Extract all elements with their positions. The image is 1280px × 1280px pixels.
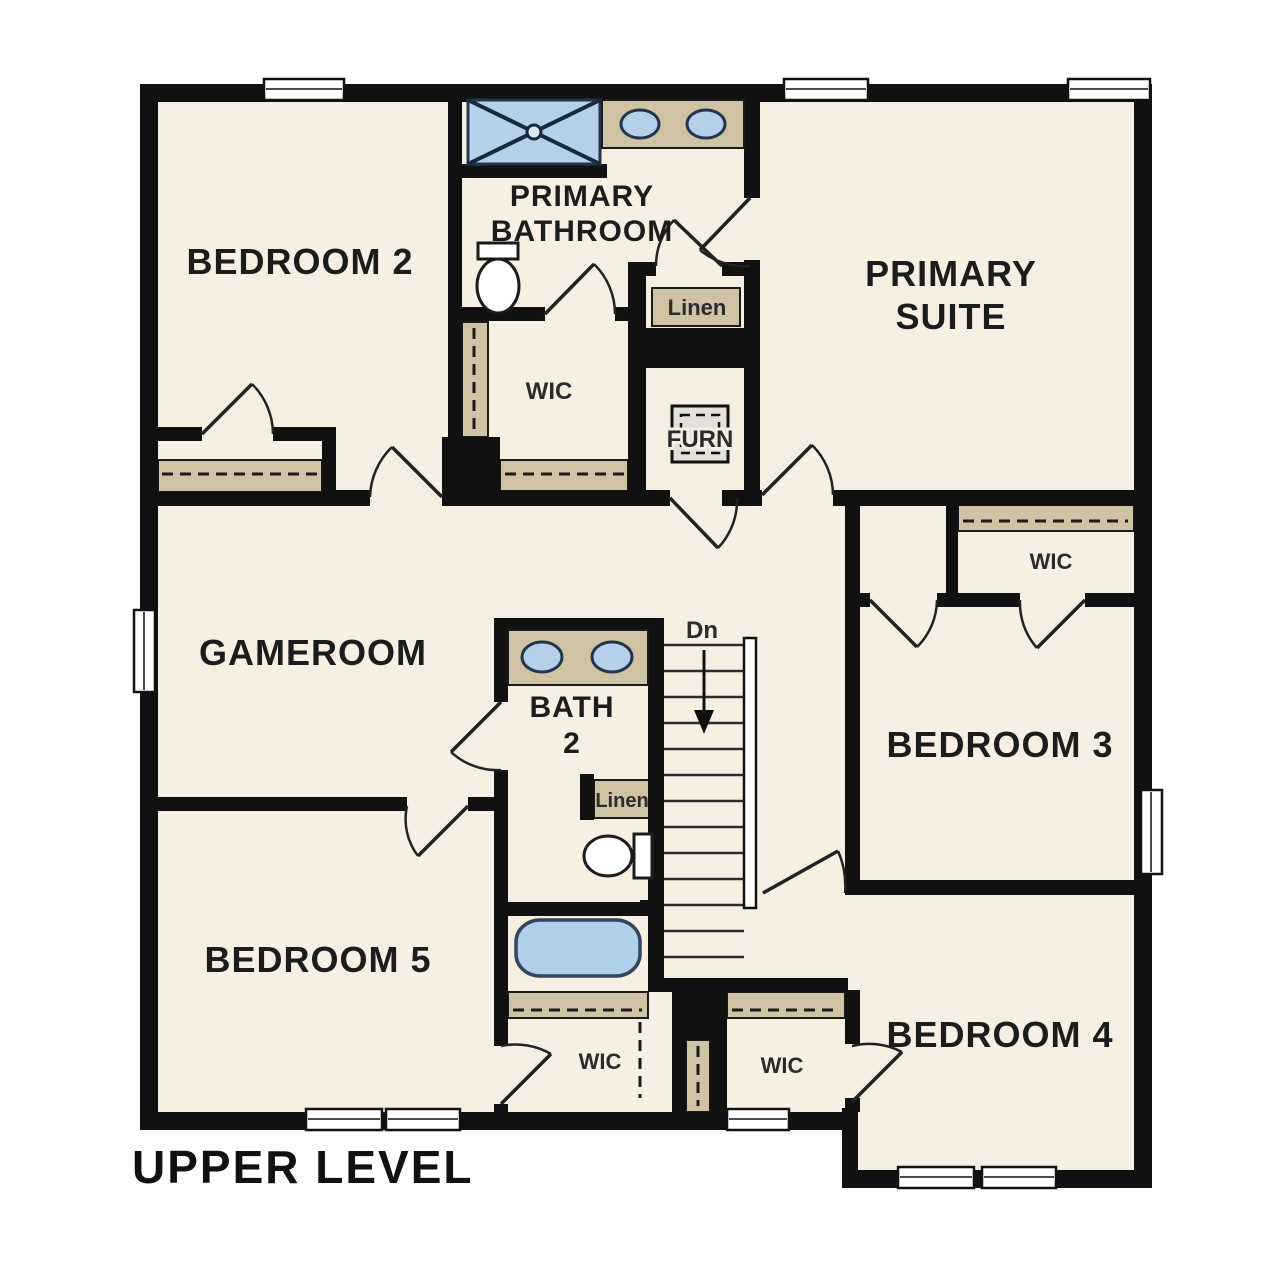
bathtub-icon <box>516 920 640 976</box>
wall-mid-b <box>442 490 628 506</box>
wall-wic5-east <box>672 990 686 1112</box>
bath2-sink-2 <box>592 642 632 672</box>
wall-suite-west-top <box>744 102 760 198</box>
label-bath2-1: BATH <box>529 691 614 724</box>
bath2-toilet-tank <box>634 834 652 878</box>
primary-sink-1 <box>621 110 659 138</box>
label-bedroom5: BEDROOM 5 <box>204 939 431 980</box>
floor-plan: BEDROOM 2 PRIMARY BATHROOM PRIMARY SUITE… <box>0 0 1280 1280</box>
wall-linen2-stub <box>580 774 594 820</box>
bath2-toilet-bowl <box>584 836 632 876</box>
label-primary-bathroom-2: BATHROOM <box>491 215 673 248</box>
label-bedroom4: BEDROOM 4 <box>886 1014 1113 1055</box>
bath2-toilet-icon <box>584 834 652 878</box>
wall-bath-south-b <box>615 307 628 321</box>
primary-toilet-icon <box>477 243 519 313</box>
label-wic-primary: WIC <box>526 378 573 405</box>
wall-wic4-west <box>710 1040 727 1112</box>
label-bedroom3: BEDROOM 3 <box>886 724 1113 765</box>
label-gameroom: GAMEROOM <box>199 632 427 673</box>
label-primary-bathroom-1: PRIMARY <box>510 180 654 213</box>
bath2-vanity-icon <box>508 630 648 685</box>
wall-wic4-east-a <box>845 990 860 1044</box>
wall-gameroom-south-a <box>140 797 407 811</box>
wall-bed2-closet-top-a <box>140 427 202 441</box>
label-primary-suite-2: SUITE <box>895 296 1006 337</box>
label-linen-bath2: Linen <box>595 790 648 812</box>
walk-in-shower-icon <box>468 100 600 164</box>
bedroom5-wic-shelf <box>508 992 648 1018</box>
wall-bath2-west-c <box>494 1104 508 1130</box>
label-linen-primary: Linen <box>668 295 727 320</box>
label-wic-bedroom5: WIC <box>579 1049 622 1074</box>
primary-toilet-bowl <box>477 259 519 313</box>
wall-vestibule-west <box>628 262 646 506</box>
wall-suite-west-bottom <box>744 260 760 506</box>
primary-wic-bottom-shelf <box>500 460 628 492</box>
wall-mid-c <box>646 490 670 506</box>
wall-bedroom4-left <box>842 1108 858 1188</box>
bedroom3-wic-shelf <box>958 505 1134 531</box>
wall-stair-left <box>648 618 664 990</box>
bedroom2-closet-shelf <box>158 460 322 492</box>
wall-linen-top-a <box>646 262 656 276</box>
page-title: UPPER LEVEL <box>132 1141 474 1193</box>
label-bedroom2: BEDROOM 2 <box>186 241 413 282</box>
shower-drain <box>527 125 541 139</box>
wall-wic3-west <box>946 502 958 598</box>
wall-outer-right <box>1134 84 1152 1188</box>
label-wic-bedroom4: WIC <box>761 1053 804 1078</box>
primary-vanity-icon <box>602 100 744 148</box>
label-bath2-2: 2 <box>563 727 581 760</box>
bath2-sink-1 <box>522 642 562 672</box>
stair-rail <box>744 638 756 908</box>
wall-bed3-south <box>845 880 1152 895</box>
wall-outer-left <box>140 84 158 1130</box>
primary-sink-2 <box>687 110 725 138</box>
wall-chase-upper <box>646 328 744 368</box>
wall-bed3-top-b <box>937 593 1020 607</box>
wall-shower-bottom <box>462 164 607 178</box>
wall-block-bed2-wic <box>442 437 500 497</box>
wall-bedroom2-east <box>448 102 462 437</box>
wall-bath2-west-b <box>494 770 508 1046</box>
wall-tub-top <box>508 902 664 916</box>
wall-mid-a <box>336 490 370 506</box>
wall-bed3-top-a <box>845 593 870 607</box>
wall-mid-e <box>833 490 1152 506</box>
label-furnace: FURN <box>667 426 734 453</box>
label-stairs-dn: Dn <box>686 617 718 644</box>
wall-bed2-closet-bottom <box>140 492 336 506</box>
floor-plan-page: BEDROOM 2 PRIMARY BATHROOM PRIMARY SUITE… <box>0 0 1280 1280</box>
label-primary-suite-1: PRIMARY <box>865 253 1037 294</box>
wall-gameroom-south-b <box>468 797 508 811</box>
wall-stair-bottom <box>648 978 848 992</box>
wall-bed3-top-c <box>1085 593 1152 607</box>
wall-hall-east <box>845 502 860 880</box>
label-wic-bedroom3: WIC <box>1030 549 1073 574</box>
bedroom4-wic-shelf <box>727 992 845 1018</box>
